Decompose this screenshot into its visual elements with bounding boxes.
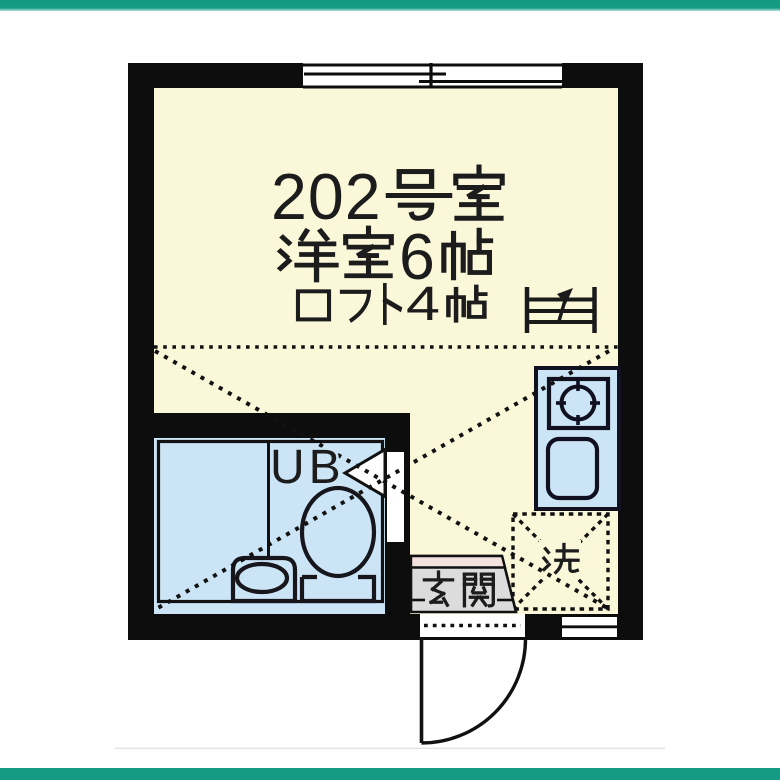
svg-text:202: 202 (271, 161, 382, 233)
svg-text:4: 4 (406, 278, 440, 331)
svg-text:UB: UB (270, 441, 345, 494)
